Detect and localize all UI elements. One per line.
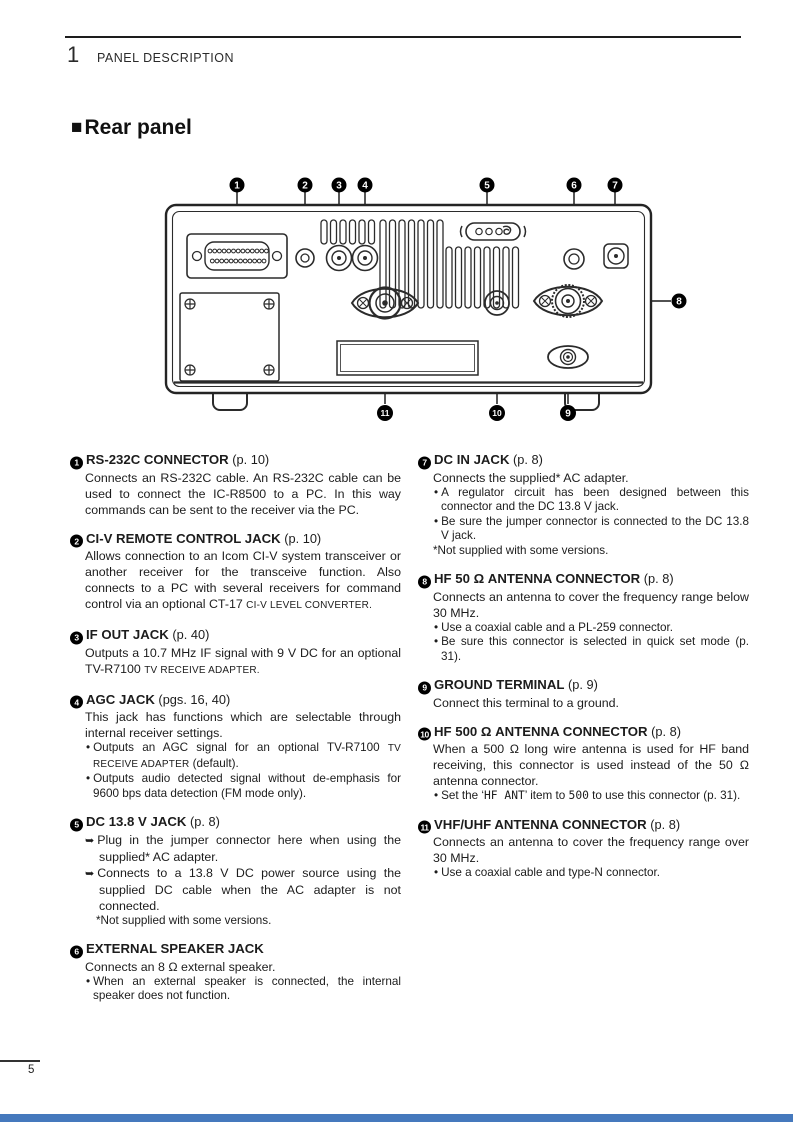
item-p: This jack has functions which are select… — [85, 709, 401, 741]
text-run: to use this connector (p. 31). — [589, 789, 740, 802]
svg-text:1: 1 — [234, 181, 240, 192]
item-note: *Not supplied with some versions. — [433, 544, 749, 559]
text-run: Use a coaxial cable and a PL-259 connect… — [441, 621, 673, 634]
chapter-number: 1 — [67, 42, 79, 68]
item-bullet: •Outputs audio detected signal without d… — [85, 772, 401, 801]
item: 2CI-V REMOTE CONTROL JACK (p. 10)Allows … — [70, 531, 401, 615]
callout-badge: 8 — [418, 575, 431, 588]
item: 7DC IN JACK (p. 8)Connects the supplied*… — [418, 452, 749, 558]
page-ref: (p. 10) — [229, 452, 270, 467]
page-ref: (p. 9) — [564, 677, 597, 692]
callout-badge: 10 — [418, 728, 431, 741]
item-title: DC IN JACK — [434, 452, 509, 467]
bullet-icon: • — [86, 741, 90, 754]
text-run: *Not supplied with some versions. — [96, 914, 271, 927]
arrow-icon: ➥ — [85, 868, 94, 880]
page-ref: (p. 8) — [509, 452, 542, 467]
text-run: *Not supplied with some versions. — [433, 544, 608, 557]
text-run: This jack has functions which are select… — [85, 710, 401, 740]
text-run: Plug in the jumper connector here when u… — [97, 833, 401, 864]
section-title: Rear panel — [84, 116, 191, 139]
page-ref: (p. 8) — [186, 814, 219, 829]
text-run: A regulator circuit has been designed be… — [441, 486, 749, 514]
left-column: 1RS-232C CONNECTOR (p. 10)Connects an RS… — [70, 452, 401, 1017]
item-p: Connects an antenna to cover the frequen… — [433, 589, 749, 621]
item-p: Allows connection to an Icom CI-V system… — [85, 548, 401, 614]
callout-badge: 2 — [70, 535, 83, 548]
callout-badge: 6 — [70, 945, 83, 958]
item-heading: 3IF OUT JACK (p. 40) — [70, 627, 401, 643]
svg-text:7: 7 — [612, 181, 618, 192]
callout-badge: 3 — [70, 631, 83, 644]
item-body: Allows connection to an Icom CI-V system… — [70, 548, 401, 614]
item-heading: 11VHF/UHF ANTENNA CONNECTOR (p. 8) — [418, 817, 749, 833]
text-run: Connects an antenna to cover the frequen… — [433, 590, 749, 620]
svg-text:10: 10 — [492, 408, 502, 418]
text-run: TV RECEIVE ADAPTER. — [144, 665, 260, 676]
item-body: ➥Plug in the jumper connector here when … — [70, 832, 401, 929]
arrow-icon: ➥ — [85, 835, 94, 847]
text-run: Use a coaxial cable and type-N connector… — [441, 866, 660, 879]
item-bullet: •Be sure the jumper connector is connect… — [433, 515, 749, 544]
item-bullet: •Be sure this connector is selected in q… — [433, 635, 749, 664]
item-bullet: •Outputs an AGC signal for an optional T… — [85, 741, 401, 772]
item-p: Connect this terminal to a ground. — [433, 695, 749, 711]
item-subnote: *Not supplied with some versions. — [85, 914, 401, 929]
item-bullet: •Use a coaxial cable and a PL-259 connec… — [433, 621, 749, 636]
text-run: CI-V LEVEL CONVERTER. — [246, 600, 372, 611]
svg-text:5: 5 — [484, 181, 490, 192]
bullet-icon: • — [86, 975, 90, 988]
item-title: VHF/UHF ANTENNA CONNECTOR — [434, 817, 647, 832]
item-heading: 1RS-232C CONNECTOR (p. 10) — [70, 452, 401, 468]
footer-rule — [0, 1060, 40, 1062]
bullet-icon: • — [434, 515, 438, 528]
rear-panel-diagram: 1 2 3 4 5 6 7 8 9 10 11 — [0, 170, 793, 450]
svg-text:6: 6 — [571, 181, 577, 192]
text-run: (default). — [189, 757, 238, 770]
text-run: When a 500 Ω long wire antenna is used f… — [433, 742, 749, 788]
item-heading: 7DC IN JACK (p. 8) — [418, 452, 749, 468]
item-body: Outputs a 10.7 MHz IF signal with 9 V DC… — [70, 645, 401, 679]
text-run: When an external speaker is connected, t… — [93, 975, 401, 1003]
item-bullet: •Set the ‘HF ANT’ item to 500 to use thi… — [433, 789, 749, 804]
page-ref: (p. 10) — [281, 531, 322, 546]
item-heading: 5DC 13.8 V JACK (p. 8) — [70, 814, 401, 830]
right-column: 7DC IN JACK (p. 8)Connects the supplied*… — [418, 452, 749, 894]
callout-badge: 7 — [418, 456, 431, 469]
item-heading: 6EXTERNAL SPEAKER JACK — [70, 941, 401, 957]
section-marker-icon: ■ — [71, 117, 82, 139]
item-heading: 9GROUND TERMINAL (p. 9) — [418, 677, 749, 693]
item-heading: 8HF 50 Ω ANTENNA CONNECTOR (p. 8) — [418, 571, 749, 587]
page-ref: (p. 8) — [647, 817, 680, 832]
text-run: Connects an RS-232C cable. An RS-232C ca… — [85, 471, 401, 517]
item-bullet: •Use a coaxial cable and type-N connecto… — [433, 866, 749, 881]
text-run: Be sure this connector is selected in qu… — [441, 635, 749, 663]
item: 9GROUND TERMINAL (p. 9)Connect this term… — [418, 677, 749, 711]
item-body: Connect this terminal to a ground. — [418, 695, 749, 711]
callout-badge: 5 — [70, 818, 83, 831]
item-p: Connects an antenna to cover the frequen… — [433, 834, 749, 866]
text-run: Set the ‘ — [441, 789, 484, 802]
item: 8HF 50 Ω ANTENNA CONNECTOR (p. 8)Connect… — [418, 571, 749, 664]
callout-badge: 1 — [70, 456, 83, 469]
item-title: GROUND TERMINAL — [434, 677, 564, 692]
item-p: Connects the supplied* AC adapter. — [433, 470, 749, 486]
chapter-title: PANEL DESCRIPTION — [97, 51, 234, 65]
text-run: Connect this terminal to a ground. — [433, 696, 619, 710]
callout-badge: 11 — [418, 821, 431, 834]
item-body: This jack has functions which are select… — [70, 709, 401, 801]
bullet-icon: • — [86, 772, 90, 785]
item-title: DC 13.8 V JACK — [86, 814, 186, 829]
item-p: Connects an 8 Ω external speaker. — [85, 959, 401, 975]
text-run: HF ANT — [484, 789, 525, 802]
bullet-icon: • — [434, 621, 438, 634]
item-bullet: •A regulator circuit has been designed b… — [433, 486, 749, 515]
svg-text:4: 4 — [362, 181, 368, 192]
text-run: Connects the supplied* AC adapter. — [433, 471, 629, 485]
item-body: Connects an RS-232C cable. An RS-232C ca… — [70, 470, 401, 518]
item-body: Connects an antenna to cover the frequen… — [418, 834, 749, 881]
item: 11VHF/UHF ANTENNA CONNECTOR (p. 8)Connec… — [418, 817, 749, 881]
bullet-icon: • — [434, 635, 438, 648]
text-run: ’ item to — [525, 789, 569, 802]
item: 4AGC JACK (pgs. 16, 40)This jack has fun… — [70, 692, 401, 802]
item-title: AGC JACK — [86, 692, 155, 707]
footer-color-bar — [0, 1114, 793, 1122]
manual-page: 1 PANEL DESCRIPTION ■Rear panel — [0, 0, 793, 1122]
bullet-icon: • — [434, 789, 438, 802]
item-p: Outputs a 10.7 MHz IF signal with 9 V DC… — [85, 645, 401, 679]
text-run: Outputs an AGC signal for an optional TV… — [93, 741, 388, 754]
item-title: IF OUT JACK — [86, 627, 169, 642]
svg-text:11: 11 — [381, 408, 390, 418]
svg-text:3: 3 — [336, 181, 342, 192]
text-run: Connects an antenna to cover the frequen… — [433, 835, 749, 865]
item: 1RS-232C CONNECTOR (p. 10)Connects an RS… — [70, 452, 401, 518]
text-run: Connects to a 13.8 V DC power source usi… — [97, 866, 401, 913]
item-p: Connects an RS-232C cable. An RS-232C ca… — [85, 470, 401, 518]
item-p: When a 500 Ω long wire antenna is used f… — [433, 741, 749, 789]
item: 3IF OUT JACK (p. 40)Outputs a 10.7 MHz I… — [70, 627, 401, 679]
item-title: RS-232C CONNECTOR — [86, 452, 229, 467]
item-title: HF 500 Ω ANTENNA CONNECTOR — [434, 724, 648, 739]
item-body: When a 500 Ω long wire antenna is used f… — [418, 741, 749, 804]
callout-badge: 4 — [70, 696, 83, 709]
item-body: Connects an antenna to cover the frequen… — [418, 589, 749, 665]
item-arrow: ➥Plug in the jumper connector here when … — [85, 832, 401, 865]
item-title: EXTERNAL SPEAKER JACK — [86, 941, 264, 956]
section-heading: ■Rear panel — [71, 116, 192, 140]
bullet-icon: • — [434, 866, 438, 879]
item: 5DC 13.8 V JACK (p. 8)➥Plug in the jumpe… — [70, 814, 401, 928]
text-run: Be sure the jumper connector is connecte… — [441, 515, 749, 543]
callout-badge: 9 — [418, 681, 431, 694]
item-arrow: ➥Connects to a 13.8 V DC power source us… — [85, 865, 401, 914]
svg-text:9: 9 — [565, 409, 571, 420]
item-title: HF 50 Ω ANTENNA CONNECTOR — [434, 571, 640, 586]
item: 10HF 500 Ω ANTENNA CONNECTOR (p. 8)When … — [418, 724, 749, 804]
page-ref: (p. 8) — [640, 571, 673, 586]
item-title: CI-V REMOTE CONTROL JACK — [86, 531, 281, 546]
text-run: Connects an 8 Ω external speaker. — [85, 960, 275, 974]
svg-text:8: 8 — [676, 297, 682, 308]
item-bullet: •When an external speaker is connected, … — [85, 975, 401, 1004]
page-number: 5 — [28, 1064, 34, 1076]
text-run: Outputs audio detected signal without de… — [93, 772, 401, 800]
item-body: Connects an 8 Ω external speaker.•When a… — [70, 959, 401, 1004]
page-ref: (pgs. 16, 40) — [155, 692, 230, 707]
item-heading: 10HF 500 Ω ANTENNA CONNECTOR (p. 8) — [418, 724, 749, 740]
item-heading: 4AGC JACK (pgs. 16, 40) — [70, 692, 401, 708]
page-ref: (p. 8) — [648, 724, 681, 739]
item: 6EXTERNAL SPEAKER JACKConnects an 8 Ω ex… — [70, 941, 401, 1004]
bullet-icon: • — [434, 486, 438, 499]
header-rule — [65, 36, 741, 38]
item-heading: 2CI-V REMOTE CONTROL JACK (p. 10) — [70, 531, 401, 547]
text-run: 500 — [569, 789, 589, 802]
svg-text:2: 2 — [302, 181, 308, 192]
item-body: Connects the supplied* AC adapter.•A reg… — [418, 470, 749, 559]
page-ref: (p. 40) — [169, 627, 210, 642]
